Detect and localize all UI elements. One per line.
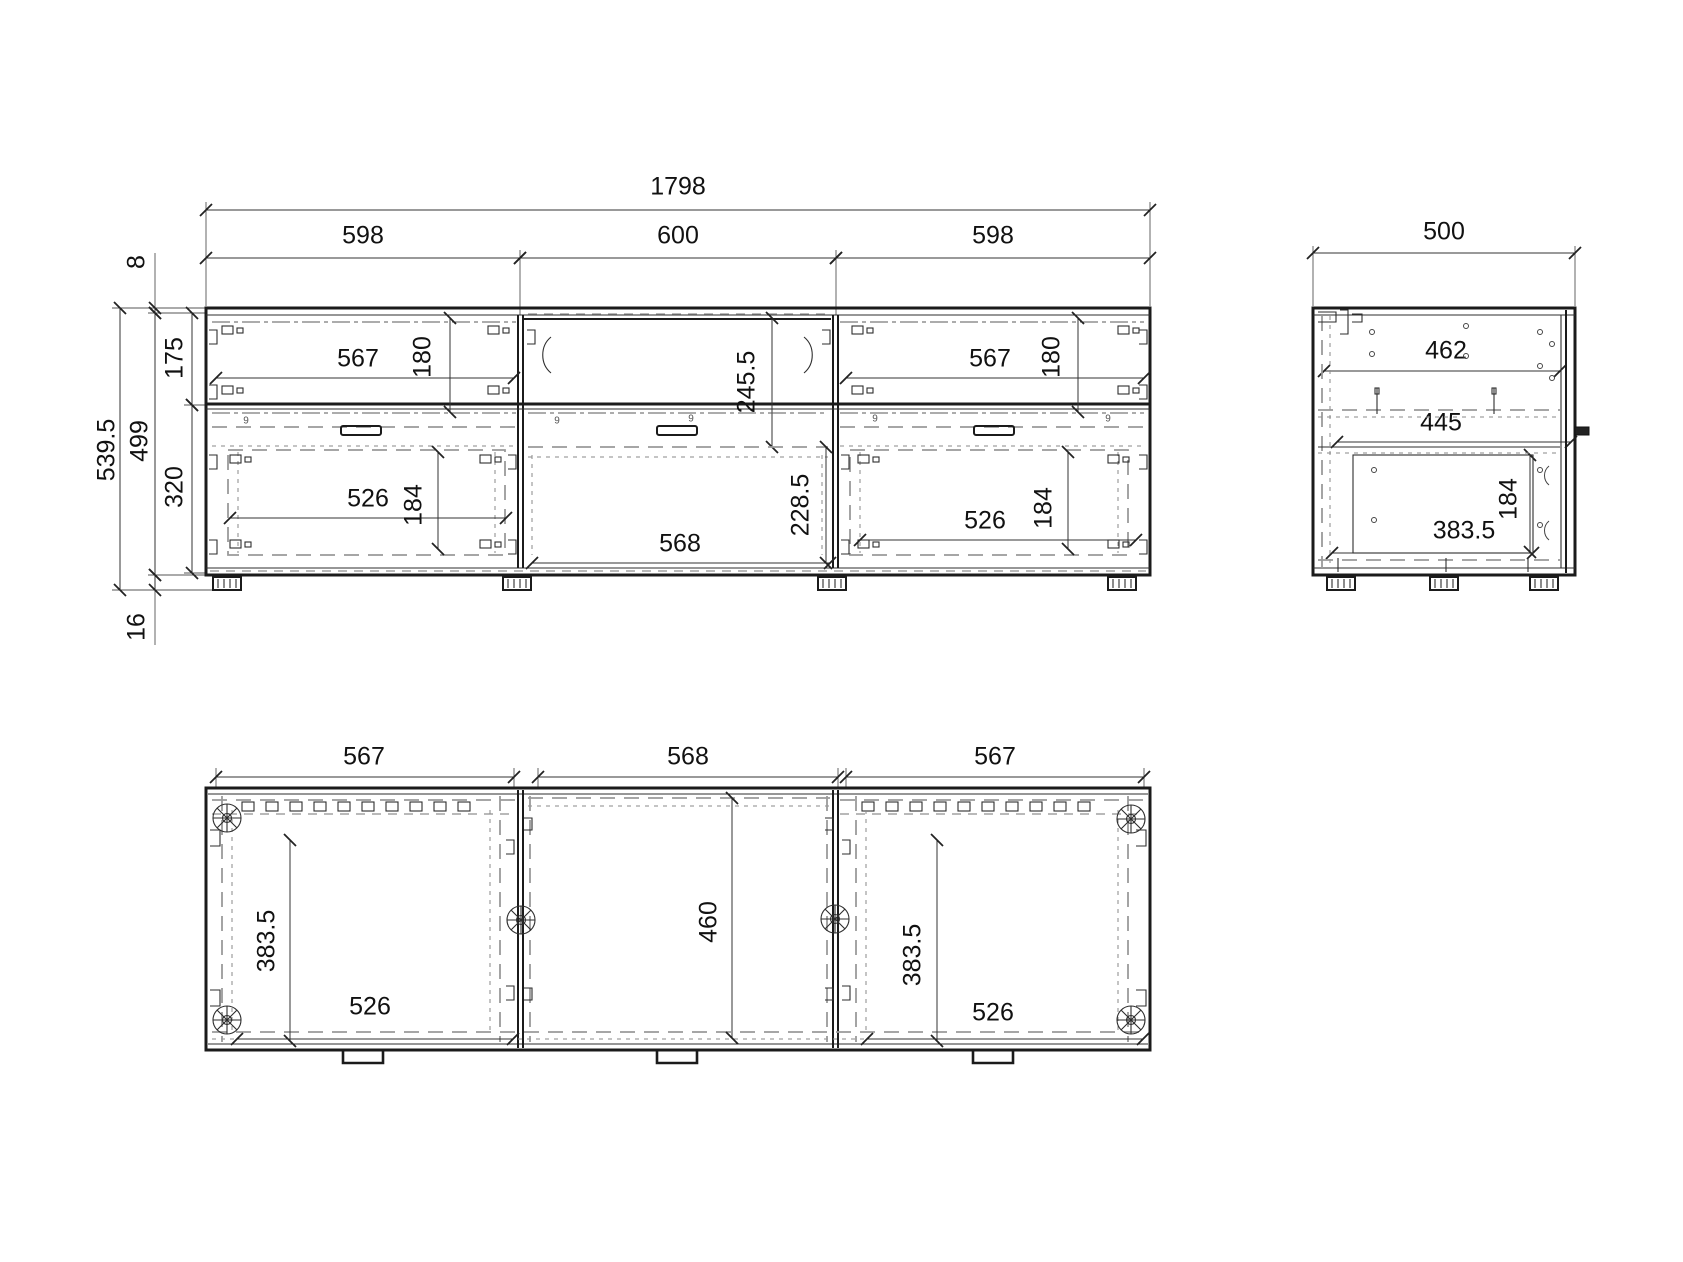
plan-wheel xyxy=(213,1006,241,1034)
dim-side-panel-depth: 462 xyxy=(1425,337,1467,365)
dim-plan-section-middle: 568 xyxy=(667,743,709,771)
side-foot-2 xyxy=(1430,577,1458,590)
side-view: 500 462 445 383.5 184 xyxy=(1313,218,1589,590)
dim-side-shelf-depth: 445 xyxy=(1420,409,1462,437)
plan-wheel xyxy=(213,804,241,832)
dim-front-right-box-w: 526 xyxy=(964,507,1006,535)
front-foot-4 xyxy=(1108,577,1136,590)
dim-front-section-middle: 600 xyxy=(657,222,699,250)
front-top-dimensions: 1798 598 600 598 xyxy=(206,173,1150,315)
front-foot-2 xyxy=(503,577,531,590)
dim-front-section-left: 598 xyxy=(342,222,384,250)
front-right-section: 567 180 526 184 9 9 xyxy=(840,318,1147,555)
dim-front-right-front-w: 567 xyxy=(969,345,1011,373)
plan-foot-notch-2 xyxy=(657,1050,697,1063)
plan-wheel xyxy=(507,906,535,934)
dim-front-section-right: 598 xyxy=(972,222,1014,250)
dim-plan-left-box-d: 383.5 xyxy=(253,910,281,973)
dim-front-total-height: 539.5 xyxy=(93,419,121,482)
plan-right-compartment: 383.5 526 xyxy=(840,796,1146,1042)
plan-wheel xyxy=(1117,1006,1145,1034)
technical-drawing-sheet: 1798 598 600 598 8 539.5 499 175 320 16 xyxy=(0,0,1683,1262)
dim-plan-section-right: 567 xyxy=(974,743,1016,771)
front-foot-3 xyxy=(818,577,846,590)
plan-right-back-rail xyxy=(862,802,1090,811)
dim-plan-section-left: 567 xyxy=(343,743,385,771)
dim-plan-right-box-w: 526 xyxy=(972,999,1014,1027)
plan-top-dimensions: 567 568 567 xyxy=(216,743,1144,788)
plan-left-back-rail xyxy=(242,802,470,811)
hardware-mark: 9 xyxy=(243,416,249,427)
plan-left-compartment: 383.5 526 xyxy=(210,796,516,1042)
side-handle xyxy=(1575,427,1589,435)
dim-front-overall-width: 1798 xyxy=(650,173,706,201)
plan-wheel xyxy=(1117,805,1145,833)
dim-side-overall-depth: 500 xyxy=(1423,218,1465,246)
hardware-mark: 9 xyxy=(872,414,878,425)
hardware-mark: 9 xyxy=(1105,414,1111,425)
dim-front-left-box-h: 184 xyxy=(400,484,428,526)
front-left-section: 567 180 526 184 9 xyxy=(209,318,516,555)
dim-plan-middle-inner-w: 460 xyxy=(695,901,723,943)
side-dimensions: 500 462 445 383.5 184 xyxy=(1313,218,1575,553)
plan-foot-notch-1 xyxy=(343,1050,383,1063)
dim-plan-right-box-d: 383.5 xyxy=(899,924,927,987)
dim-front-middle-niche-h: 245.5 xyxy=(733,351,761,414)
dim-front-left-box-w: 526 xyxy=(347,485,389,513)
dim-front-left-front-h: 180 xyxy=(409,336,437,378)
dim-front-carcass-height: 499 xyxy=(126,420,154,462)
front-middle-drawer-handle xyxy=(657,426,697,435)
dim-side-box-height: 184 xyxy=(1495,478,1523,520)
dim-front-right-front-h: 180 xyxy=(1038,336,1066,378)
front-height-dimensions: 8 539.5 499 175 320 16 xyxy=(93,253,222,645)
dim-front-plinth: 16 xyxy=(123,613,151,641)
plan-wheel xyxy=(821,905,849,933)
hardware-mark: 9 xyxy=(554,416,560,427)
dim-plan-left-box-w: 526 xyxy=(349,993,391,1021)
front-view: 1798 598 600 598 8 539.5 499 175 320 16 xyxy=(93,173,1150,645)
dim-front-lower-row: 320 xyxy=(161,466,189,508)
dim-front-top-panel: 8 xyxy=(123,255,151,269)
dim-front-right-box-h: 184 xyxy=(1030,487,1058,529)
dim-front-middle-front-h: 228.5 xyxy=(787,474,815,537)
hardware-mark: 9 xyxy=(688,414,694,425)
dim-front-left-front-w: 567 xyxy=(337,345,379,373)
plan-middle-compartment: 460 xyxy=(507,796,849,1042)
front-middle-section: 245.5 568 228.5 9 9 xyxy=(524,314,831,563)
front-foot-1 xyxy=(213,577,241,590)
side-foot-1 xyxy=(1327,577,1355,590)
plan-view: 567 568 567 xyxy=(206,743,1150,1063)
dim-side-box-depth: 383.5 xyxy=(1433,517,1496,545)
dim-front-middle-front-w: 568 xyxy=(659,530,701,558)
dim-front-upper-row: 175 xyxy=(161,337,189,379)
side-foot-3 xyxy=(1530,577,1558,590)
plan-foot-notch-3 xyxy=(973,1050,1013,1063)
